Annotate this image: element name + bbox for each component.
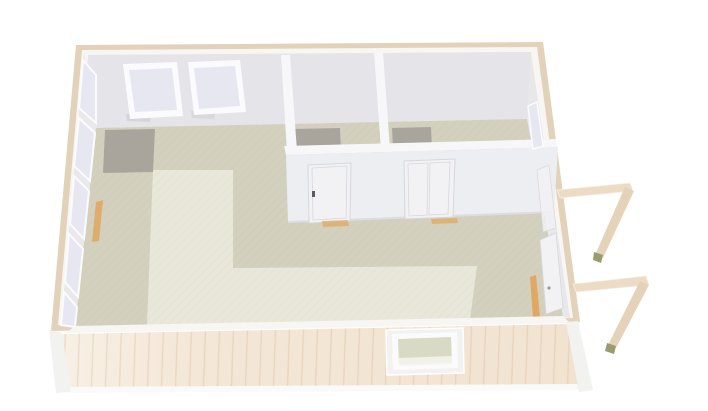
window-glass (194, 66, 240, 109)
interior-door-double[interactable] (404, 159, 458, 224)
door-handle (547, 286, 550, 289)
door-handle (312, 191, 315, 197)
floorplan-3d-viewport[interactable] (0, 0, 708, 411)
rail-diagonal (608, 281, 649, 348)
front-wall-planks (62, 324, 578, 392)
door-threshold (322, 220, 349, 227)
front-wall-window[interactable] (386, 328, 464, 375)
door-threshold (431, 218, 458, 224)
handrail-lower[interactable] (573, 276, 649, 354)
entry-mat-main-room[interactable] (103, 129, 155, 173)
front-wall[interactable] (49, 316, 593, 393)
back-wall-window-2[interactable] (188, 60, 246, 119)
rail-diagonal (595, 187, 634, 258)
render-canvas (0, 0, 708, 411)
interior-door-single[interactable] (308, 163, 351, 227)
window-glass (129, 68, 177, 112)
back-wall-window-1[interactable] (123, 62, 183, 122)
